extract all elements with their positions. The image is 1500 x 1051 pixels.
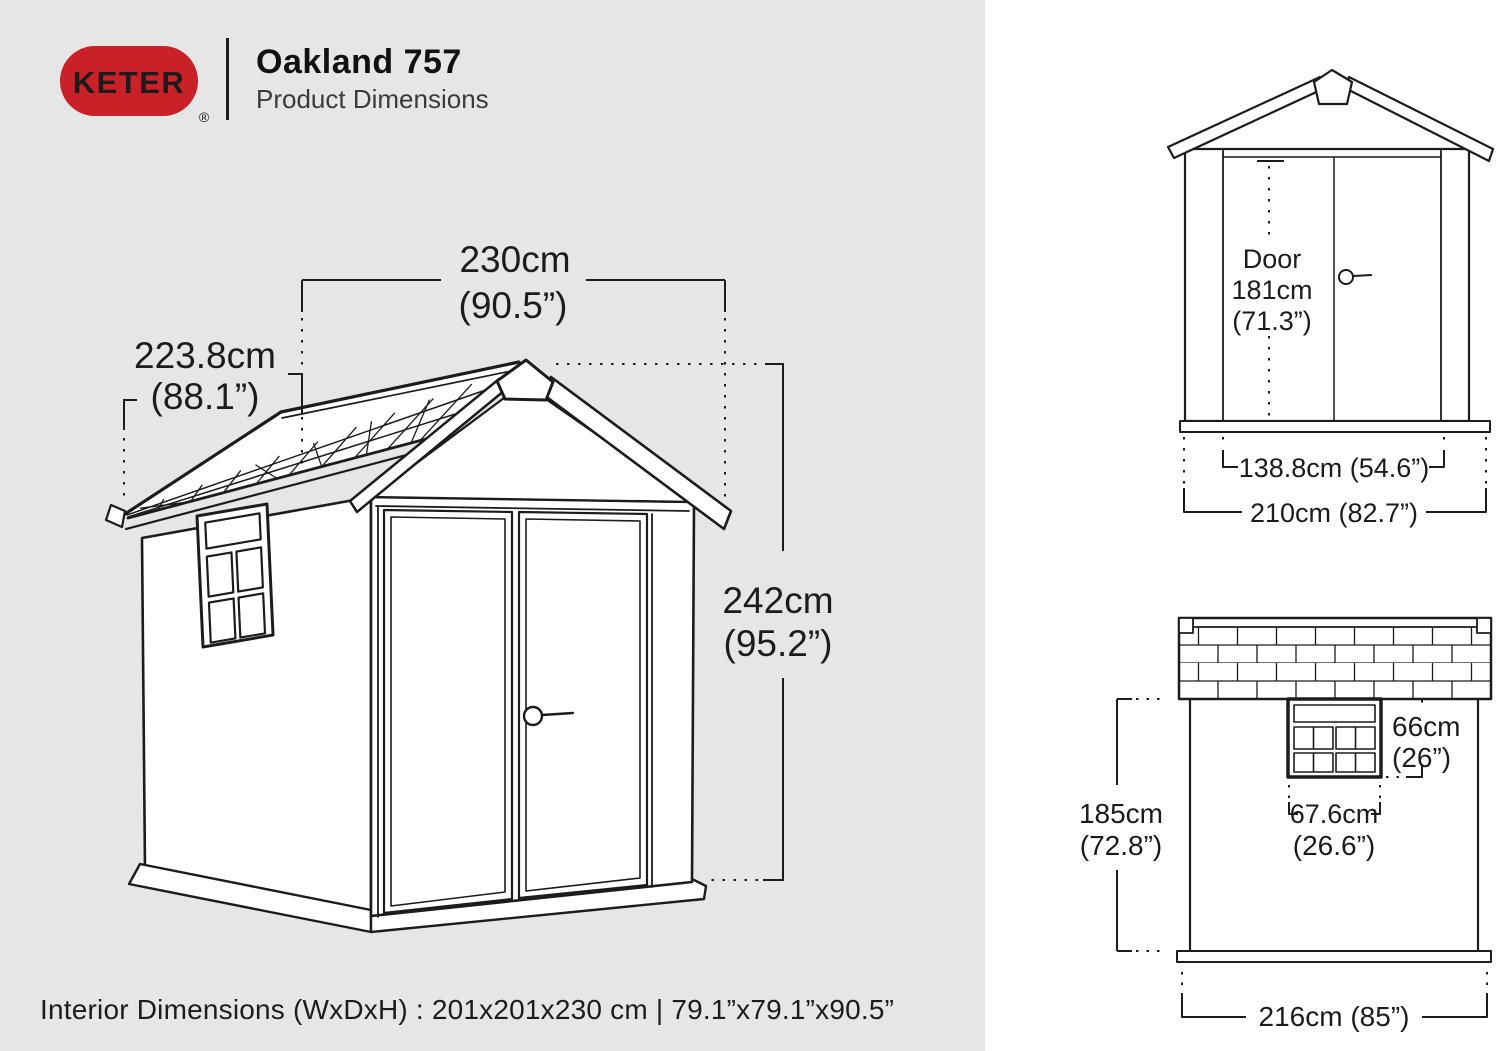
iso-door-handle (524, 707, 542, 725)
side-overall-depth-label: 216cm (85”) (1259, 1001, 1410, 1032)
iso-depth-cm-label: 223.8cm (134, 335, 276, 376)
front-door-width-label: 138.8cm (54.6”) (1239, 453, 1430, 483)
iso-height-cm-label: 242cm (722, 580, 833, 621)
iso-width-in-label: (90.5”) (459, 285, 568, 326)
product-dimensions-sheet: { "header": { "brand": "KETER", "registe… (0, 0, 1500, 1051)
side-window (1288, 699, 1381, 777)
side-window-height-in-label: (26”) (1392, 742, 1451, 773)
side-wall-height-in-label: (72.8”) (1080, 830, 1162, 861)
interior-dimensions-text: Interior Dimensions (WxDxH) : 201x201x23… (40, 994, 894, 1026)
side-roof-right-tab (1477, 618, 1491, 633)
side-wall-height-cm-label: 185cm (1079, 798, 1163, 829)
front-overall-width-label: 210cm (82.7”) (1250, 498, 1418, 528)
side-view-labels: 66cm (26”) 67.6cm (26.6”) 185cm (72.8”) … (1079, 711, 1460, 1032)
iso-width-cm-label: 230cm (459, 239, 570, 280)
iso-shed-drawing (106, 360, 731, 932)
iso-depth-in-label: (88.1”) (151, 376, 260, 417)
iso-eave-tip-cap (106, 505, 125, 527)
side-window-height-cm-label: 66cm (1392, 711, 1460, 742)
side-roof-left-tab (1179, 618, 1193, 633)
front-door-label: Door (1243, 244, 1302, 274)
front-ridge-cap (1314, 70, 1352, 104)
side-base (1177, 951, 1491, 962)
front-door-height-cm-label: 181cm (1231, 275, 1312, 305)
front-base (1180, 421, 1490, 432)
iso-height-in-label: (95.2”) (724, 623, 833, 664)
front-door-height-in-label: (71.3”) (1232, 306, 1312, 336)
dimension-drawings: 230cm (90.5”) 223.8cm (88.1”) 242cm (95.… (0, 0, 1500, 1051)
side-window-width-cm-label: 67.6cm (1290, 799, 1379, 829)
iso-side-window (197, 504, 273, 647)
side-window-width-in-label: (26.6”) (1293, 830, 1375, 861)
front-view-drawing (1168, 70, 1493, 512)
front-body (1185, 149, 1469, 421)
front-roof-left-bar (1168, 77, 1325, 158)
